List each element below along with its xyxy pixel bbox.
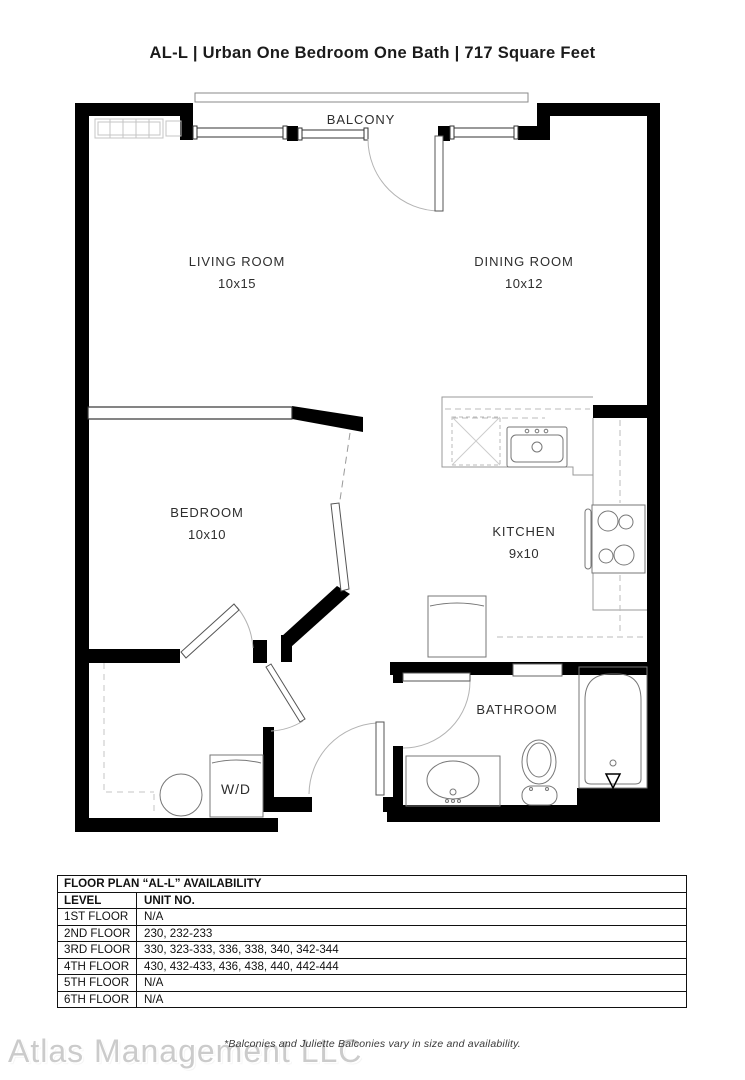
dining-room-label: DINING ROOM [474,254,573,269]
floor-plan: BALCONY LIVING ROOM 10x15 DINING ROOM 10… [0,0,745,870]
col-header-unit-no: UNIT NO. [137,893,686,909]
col-header-level: LEVEL [58,893,137,909]
hall-door-arc [271,721,303,731]
balcony-label: BALCONY [327,112,395,127]
bedroom-dims: 10x10 [188,527,226,542]
closet-dashed-line [104,663,154,816]
bathroom-door-leaf [403,673,470,681]
balcony-edge [195,93,528,102]
water-heater-icon [160,774,202,816]
table-row-1st-floor: 1ST FLOOR N/A [58,908,686,925]
level-cell: 2ND FLOOR [58,926,137,942]
living-room-label: LIVING ROOM [189,254,286,269]
units-cell: N/A [137,909,686,925]
sliding-door-track [340,433,350,500]
level-cell: 5TH FLOOR [58,975,137,991]
table-title-row: FLOOR PLAN “AL-L” AVAILABILITY [58,876,686,892]
table-header-row: LEVEL UNIT NO. [58,892,686,909]
bedroom-door-leaf [181,604,239,658]
balcony-door-leaf [435,136,443,211]
availability-table: FLOOR PLAN “AL-L” AVAILABILITY LEVEL UNI… [57,875,687,1008]
table-row-6th-floor: 6TH FLOOR N/A [58,991,686,1008]
living-room-dims: 10x15 [218,276,256,291]
wall-niche [513,664,562,676]
doors [181,136,470,795]
kitchen-sink-icon [507,427,567,467]
entry-door-leaf [376,722,384,795]
toilet-icon [522,740,557,805]
bathroom-fixtures [406,667,647,806]
hall-door-leaf [266,664,305,722]
vanity-sink-icon [406,756,500,806]
bathroom-label: BATHROOM [476,702,557,717]
bedroom-partition-wall [88,407,292,419]
bathtub-icon [579,667,647,788]
units-cell: 230, 232-233 [137,926,686,942]
table-row-4th-floor: 4TH FLOOR 430, 432-433, 436, 438, 440, 4… [58,958,686,975]
bedroom-door-arc [237,607,253,648]
footnote: *Balconies and Juliette Balconies vary i… [0,1038,745,1050]
units-cell: 430, 432-433, 436, 438, 440, 442-444 [137,959,686,975]
baseboard-heater-icon [95,119,181,138]
units-cell: 330, 323-333, 336, 338, 340, 342-344 [137,942,686,958]
level-cell: 6TH FLOOR [58,992,137,1008]
window-mid-icon [298,130,368,138]
level-cell: 3RD FLOOR [58,942,137,958]
window-left-icon [193,128,287,137]
level-cell: 1ST FLOOR [58,909,137,925]
kitchen-label: KITCHEN [492,524,555,539]
level-cell: 4TH FLOOR [58,959,137,975]
sliding-door-panel [331,503,349,591]
washer-dryer-label: W/D [221,781,251,797]
bedroom-label: BEDROOM [170,505,243,520]
room-labels: BALCONY LIVING ROOM 10x15 DINING ROOM 10… [170,112,573,797]
balcony-windows [193,126,518,140]
table-title: FLOOR PLAN “AL-L” AVAILABILITY [58,876,686,892]
kitchen-dims: 9x10 [509,546,539,561]
stove-icon [585,505,645,573]
fridge-icon [428,596,486,657]
window-right-icon [450,128,518,137]
table-row-3rd-floor: 3RD FLOOR 330, 323-333, 336, 338, 340, 3… [58,941,686,958]
bathroom-door-arc [403,681,470,748]
balcony-door-arc [368,139,440,211]
entry-door-arc [309,723,377,794]
dishwasher-icon [452,417,500,465]
units-cell: N/A [137,992,686,1008]
table-row-5th-floor: 5TH FLOOR N/A [58,974,686,991]
table-row-2nd-floor: 2ND FLOOR 230, 232-233 [58,925,686,942]
units-cell: N/A [137,975,686,991]
dining-room-dims: 10x12 [505,276,543,291]
